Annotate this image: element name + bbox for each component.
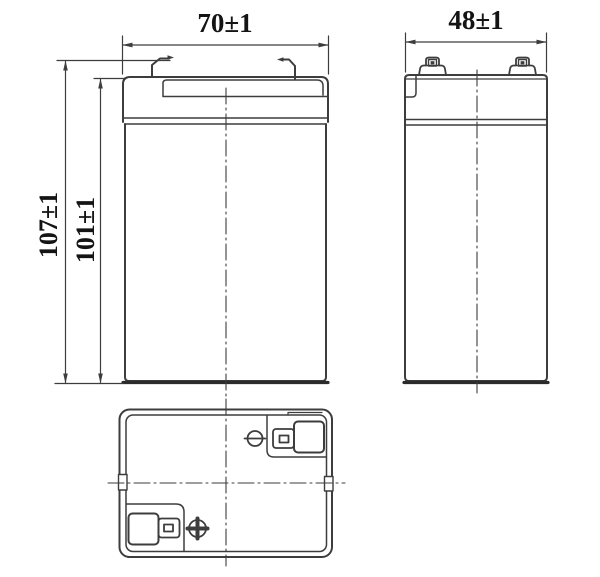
positive-terminal-icon: [188, 519, 208, 539]
dim-case-height-label: 101±1: [71, 197, 100, 263]
bottom-right-edge-notch: [325, 477, 334, 492]
front-right-terminal: [277, 57, 295, 79]
front-view: [123, 55, 328, 398]
front-lid-recess: [163, 80, 323, 96]
bottom-view: [108, 399, 345, 566]
side-view: [404, 58, 548, 394]
dim-case-height: 101±1: [71, 79, 126, 384]
front-left-terminal: [152, 55, 174, 77]
dim-overall-height: 107±1: [34, 61, 170, 384]
side-left-terminal: [419, 58, 446, 76]
negative-terminal-icon: [245, 431, 266, 446]
dim-overall-height-label: 107±1: [34, 192, 63, 258]
drawing-canvas: 70±1 48±1 107±1 101±1: [0, 0, 600, 577]
bottom-positive-terminal: [129, 514, 180, 545]
bottom-left-edge-notch: [119, 475, 128, 491]
side-right-terminal: [509, 58, 536, 76]
bottom-negative-terminal: [273, 422, 324, 453]
battery-drawing: 70±1 48±1 107±1 101±1: [0, 0, 600, 577]
dim-side-width-label: 48±1: [448, 5, 503, 35]
side-outline: [405, 75, 547, 381]
dim-front-width-label: 70±1: [197, 8, 252, 38]
